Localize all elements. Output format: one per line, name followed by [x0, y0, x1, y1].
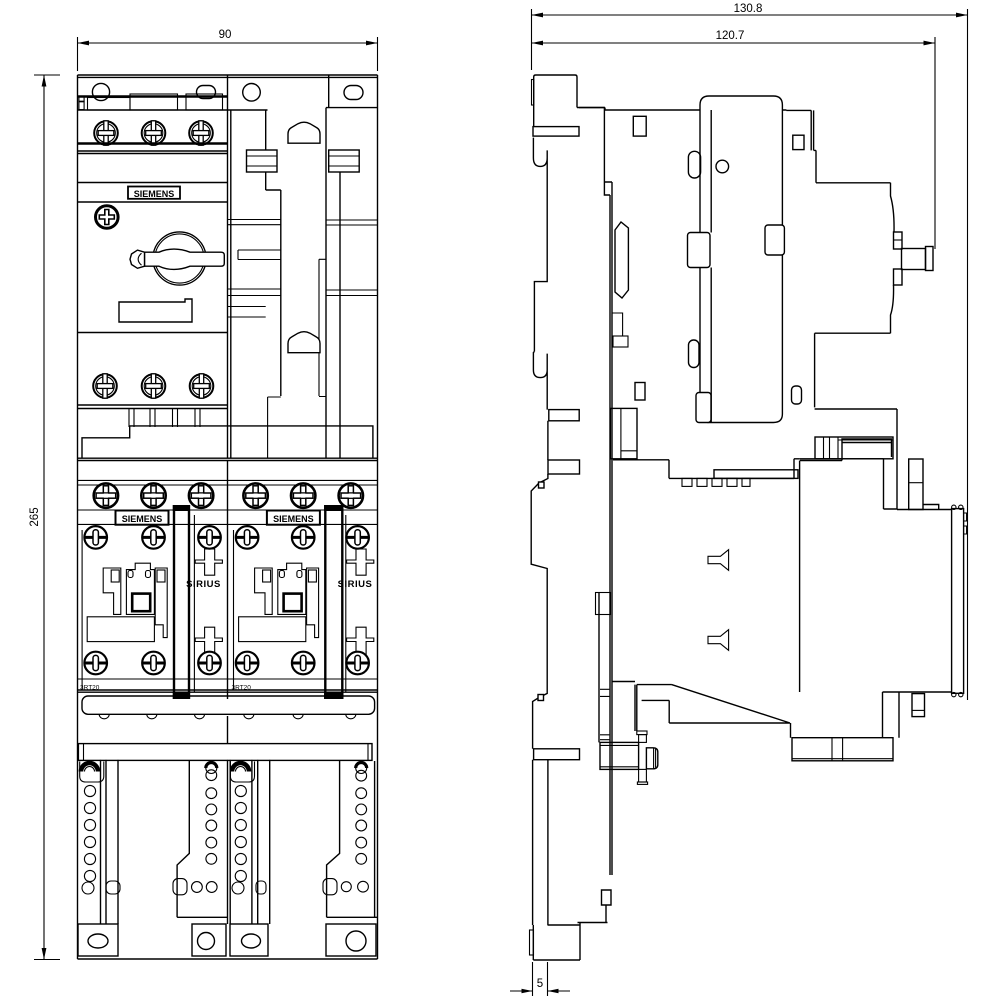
svg-text:90: 90 [219, 29, 232, 41]
svg-text:SIEMENS: SIEMENS [273, 514, 314, 524]
svg-text:SIRIUS: SIRIUS [338, 579, 373, 590]
svg-text:265: 265 [29, 507, 41, 526]
svg-text:130.8: 130.8 [734, 3, 763, 15]
svg-text:5: 5 [537, 978, 543, 990]
svg-text:SIEMENS: SIEMENS [122, 514, 163, 524]
svg-text:120.7: 120.7 [716, 30, 745, 42]
svg-text:SIEMENS: SIEMENS [134, 189, 175, 199]
svg-text:SIRIUS: SIRIUS [186, 579, 221, 590]
